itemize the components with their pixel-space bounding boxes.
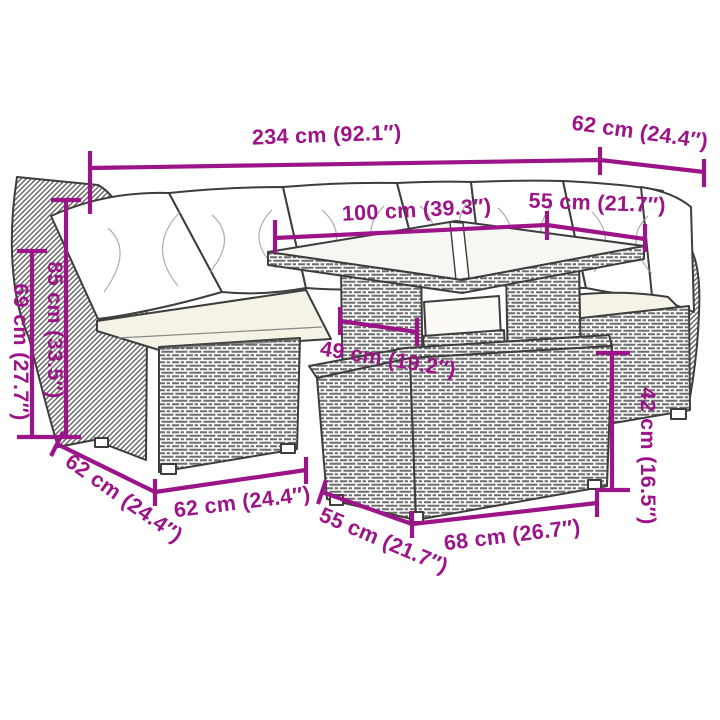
- sofa-foot: [95, 438, 108, 447]
- diagram-canvas: 234 cm (92.1″) 62 cm (24.4″) 100 cm (39.…: [0, 0, 720, 720]
- dim-footstool-width-label: 68 cm (26.7″): [443, 515, 582, 556]
- sofa-foot: [671, 409, 686, 419]
- footstool-foot: [588, 480, 601, 489]
- dim-total-height-label: 85 cm (33.5″): [43, 261, 67, 398]
- dim-armrest-height-label: 69 cm (27.7″): [9, 283, 33, 420]
- dim-corner-depth-label: 62 cm (24.4″): [570, 111, 709, 154]
- dim-line-overall-width: [90, 160, 704, 172]
- left-base: [159, 338, 300, 472]
- sofa-foot: [161, 464, 176, 474]
- product-diagram: 234 cm (92.1″) 62 cm (24.4″) 100 cm (39.…: [0, 0, 720, 720]
- sofa-foot: [281, 444, 295, 453]
- dim-footstool-height-label: 42 cm (16.5″): [636, 387, 660, 524]
- dim-right-seat-width-label: 55 cm (21.7″): [528, 189, 666, 218]
- dim-overall-width-label: 234 cm (92.1″): [252, 120, 402, 149]
